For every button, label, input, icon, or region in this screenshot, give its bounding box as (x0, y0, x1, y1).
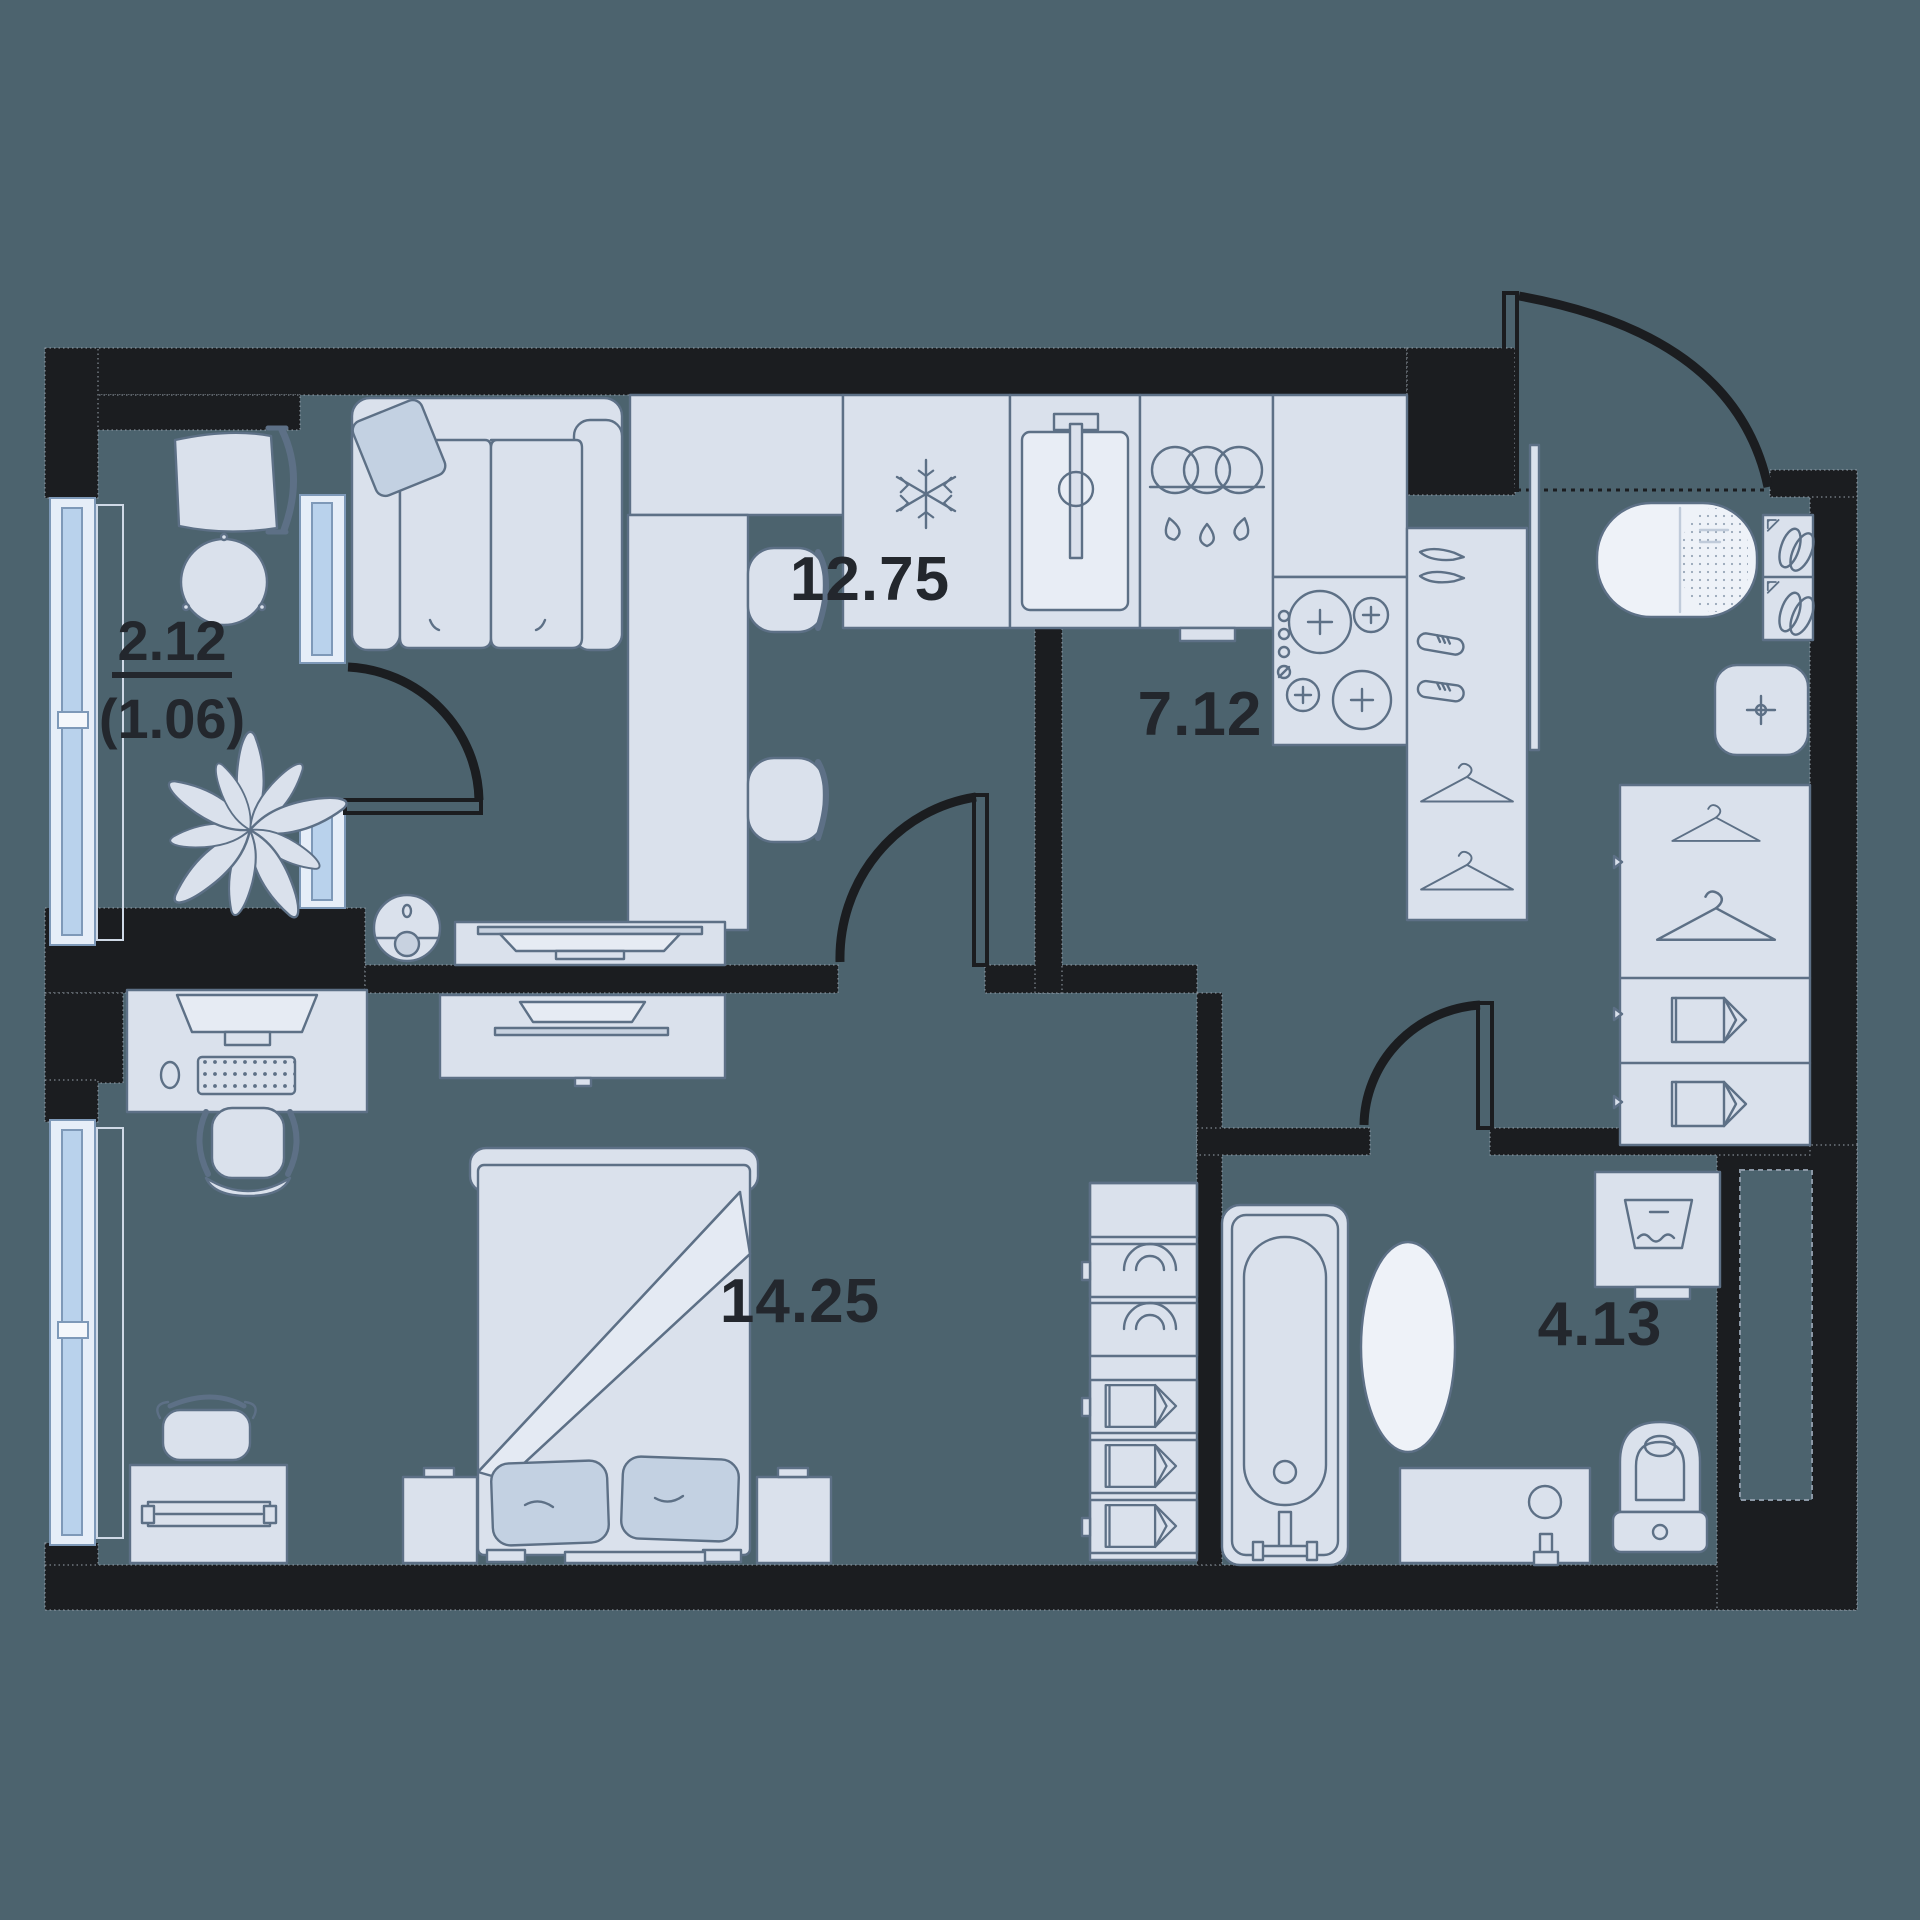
bar-stool-2 (748, 758, 826, 842)
wall-left-lower-stub (45, 1080, 98, 1122)
wall-shoe-rack (1763, 515, 1818, 640)
floor-plan-svg: 12.75 7.12 14.25 4.13 2.12 (1.06) (0, 0, 1920, 1920)
square-pouf (1715, 665, 1808, 755)
label-balcony-reduced: (1.06) (99, 687, 245, 750)
vanity-table (130, 1465, 287, 1563)
wall-bathroom-top-left (1197, 1128, 1370, 1155)
corner-counter (1273, 395, 1407, 577)
balcony-window (50, 498, 95, 945)
pots-cabinet (1140, 395, 1273, 641)
wall-living-bedroom-right (985, 965, 1197, 993)
ventilation-shaft (1740, 1170, 1812, 1500)
label-bathroom: 4.13 (1538, 1290, 1663, 1359)
balcony-chair-seat (175, 433, 277, 532)
bed (470, 1148, 758, 1563)
bedroom-dresser (440, 995, 725, 1086)
cabinet-handle (1180, 628, 1235, 641)
sofa (350, 397, 622, 650)
hall-pouf (1597, 503, 1757, 617)
tv-stand-living (455, 922, 725, 965)
counter-section (630, 395, 843, 515)
bath-rug (1361, 1242, 1455, 1452)
bar-table (628, 515, 748, 930)
wall-top (45, 348, 1407, 395)
robot-vacuum-icon (374, 895, 440, 961)
label-kitchen-living: 12.75 (790, 545, 950, 614)
cabinet-open-door (1530, 445, 1539, 750)
toilet (1613, 1422, 1707, 1552)
desk (127, 990, 367, 1112)
bedroom-storage-unit (1082, 1183, 1197, 1560)
sofa-cushion-right (491, 440, 582, 648)
stove (1273, 577, 1407, 745)
wall-bedroom-bathroom (1197, 993, 1222, 1565)
label-bedroom: 14.25 (720, 1267, 880, 1336)
keyboard-icon (198, 1057, 295, 1094)
kitchen-sink (1010, 395, 1140, 628)
nightstand-left (403, 1468, 477, 1563)
wall-living-bedroom-left (365, 965, 838, 993)
wall-top-right-stub (1770, 470, 1857, 497)
wall-left-upper (45, 348, 98, 498)
label-balcony: 2.12 (118, 609, 227, 672)
bathtub (1222, 1205, 1348, 1565)
label-balcony-underline (112, 672, 232, 678)
hall-wardrobe (1614, 785, 1810, 1145)
bathroom-sink-vanity (1400, 1468, 1590, 1565)
washing-machine (1595, 1172, 1720, 1299)
toilet-tank (1613, 1512, 1707, 1552)
hall-shoe-cabinet (1407, 528, 1527, 920)
wall-living-hall (1035, 597, 1062, 993)
wall-bottom (45, 1565, 1857, 1610)
label-hallway: 7.12 (1138, 680, 1263, 749)
floor-plan-stage: 12.75 7.12 14.25 4.13 2.12 (1.06) (0, 0, 1920, 1920)
wall-left-mid-column (45, 993, 123, 1083)
wall-entrance-left-jamb (1407, 348, 1515, 495)
nightstand-right (757, 1468, 831, 1563)
